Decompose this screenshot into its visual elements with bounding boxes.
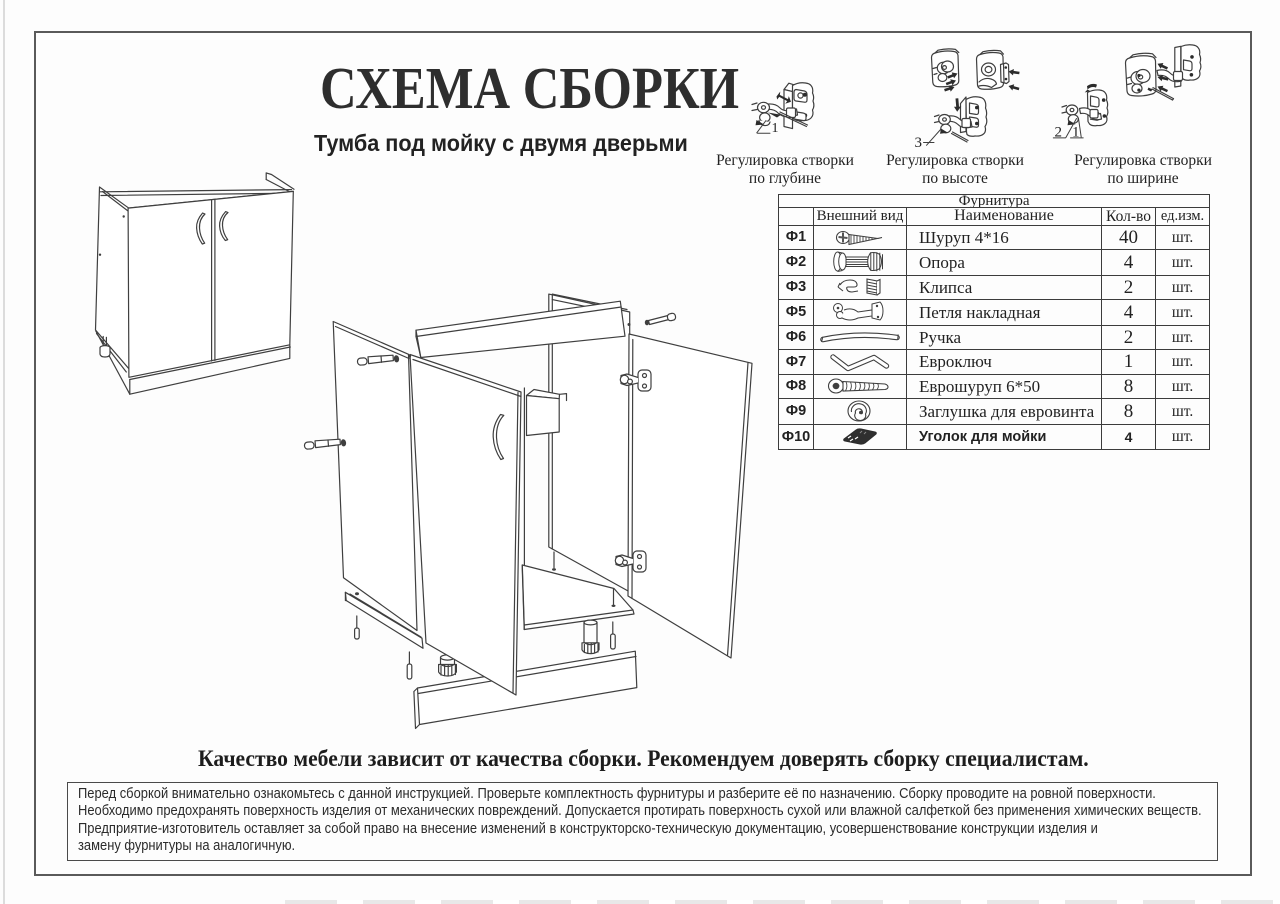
svg-text:3: 3: [915, 135, 923, 151]
svg-text:1: 1: [772, 121, 779, 136]
svg-text:2: 2: [1055, 125, 1063, 141]
svg-text:1: 1: [1072, 125, 1080, 141]
